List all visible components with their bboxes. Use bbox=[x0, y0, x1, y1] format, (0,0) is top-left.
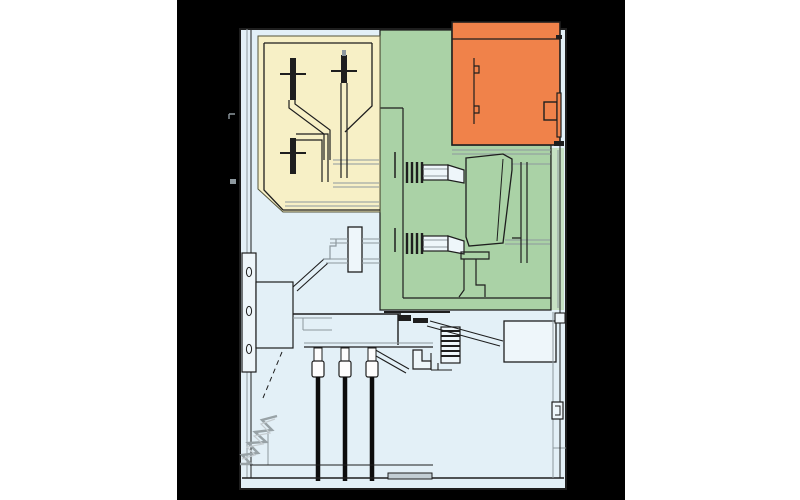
mechanism-box bbox=[256, 282, 293, 348]
mechanism-front-plate bbox=[242, 253, 256, 372]
bushing-upper-tube bbox=[423, 165, 448, 180]
termination-neck-1 bbox=[314, 348, 322, 361]
lv-door-handle bbox=[544, 102, 557, 120]
cable-termination-1 bbox=[312, 348, 324, 377]
termination-neck-3 bbox=[368, 348, 376, 361]
page bbox=[0, 0, 800, 500]
lv-handle-plate bbox=[557, 93, 561, 137]
termination-neck-2 bbox=[341, 348, 349, 361]
right-wall-stud bbox=[555, 313, 565, 323]
drive-shaft-bearing bbox=[348, 227, 362, 272]
low-voltage-compartment bbox=[452, 22, 564, 146]
bushing-lower-tube bbox=[423, 236, 448, 251]
busbar-compartment bbox=[258, 36, 380, 212]
cable-termination-3 bbox=[366, 348, 378, 377]
termination-lug-2 bbox=[339, 361, 351, 377]
switchgear-cross-section-diagram bbox=[0, 0, 800, 500]
busbar-stud-cap bbox=[342, 50, 346, 56]
door-hinge-mark-lower bbox=[230, 179, 236, 184]
right-wall-bracket bbox=[552, 402, 563, 419]
termination-lug-3 bbox=[366, 361, 378, 377]
junction-box bbox=[504, 321, 556, 362]
low-voltage-box bbox=[452, 22, 560, 145]
cable-termination-2 bbox=[339, 348, 351, 377]
termination-lug-1 bbox=[312, 361, 324, 377]
floor-sill bbox=[388, 473, 432, 479]
